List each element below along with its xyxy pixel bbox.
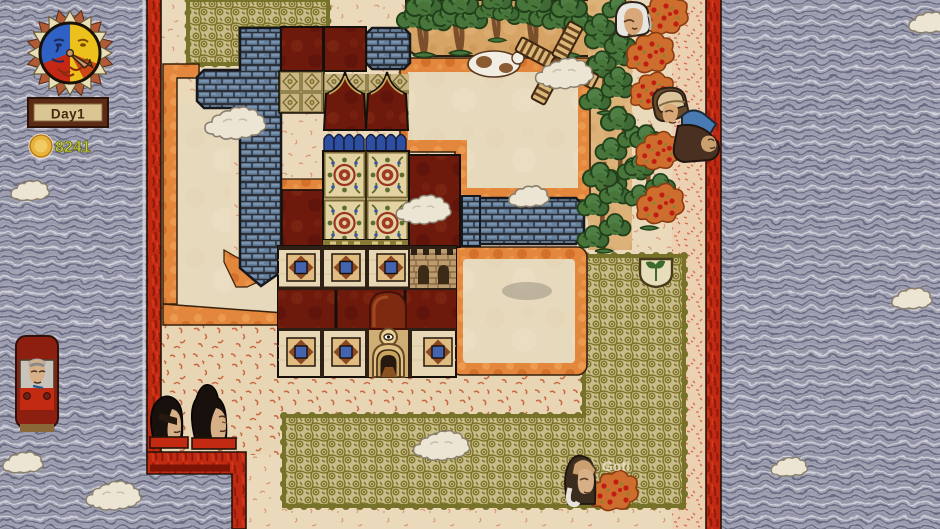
svg-text:Goti: Goti [602, 458, 630, 474]
svg-text:Day1: Day1 [51, 107, 85, 122]
svg-text:8241: 8241 [55, 139, 91, 156]
